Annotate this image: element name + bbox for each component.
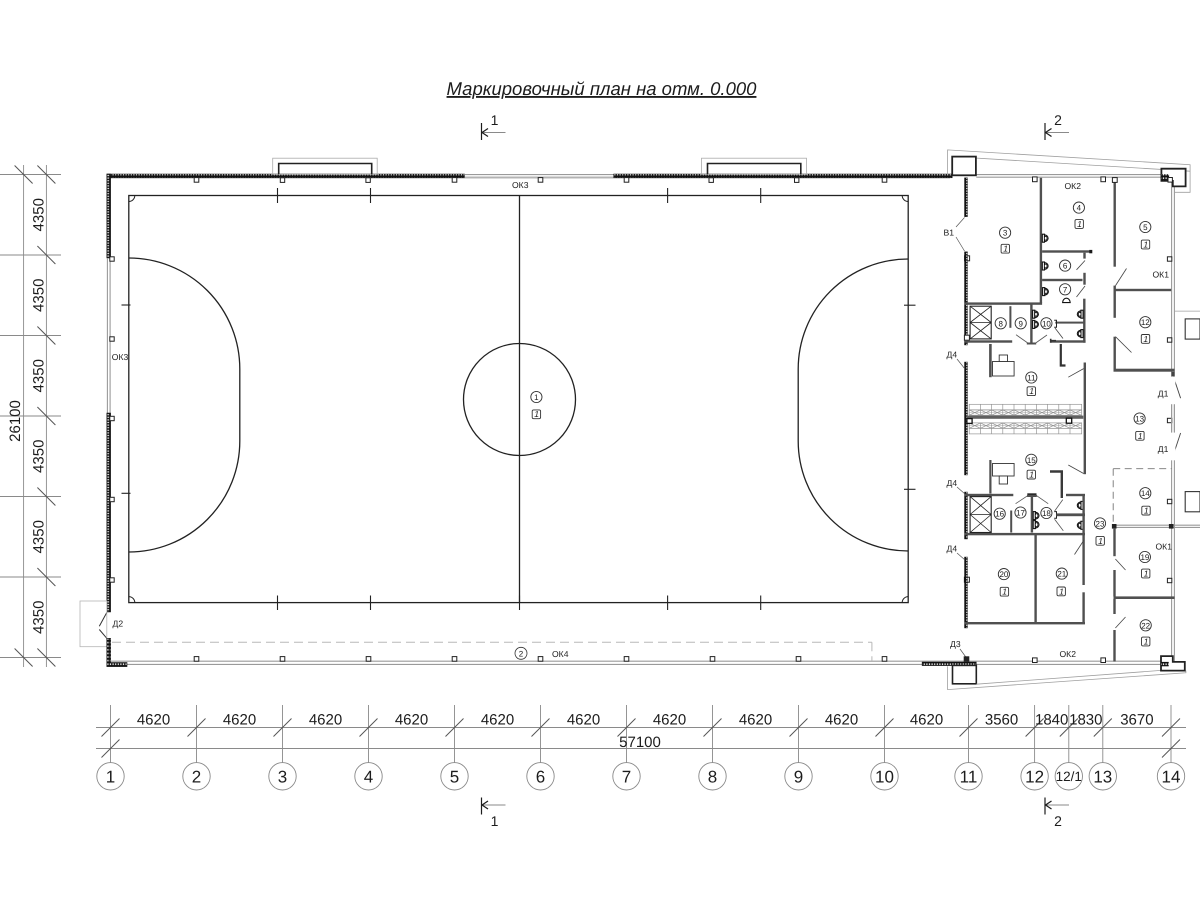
svg-text:4: 4	[1077, 204, 1082, 213]
svg-text:10: 10	[875, 767, 894, 786]
svg-text:11: 11	[960, 767, 978, 786]
svg-text:1: 1	[1003, 244, 1008, 254]
svg-text:4350: 4350	[31, 279, 48, 312]
svg-text:3670: 3670	[1120, 712, 1153, 729]
svg-text:1: 1	[1029, 386, 1034, 396]
svg-text:1: 1	[534, 393, 539, 402]
svg-text:9: 9	[1018, 319, 1023, 328]
svg-text:20: 20	[999, 570, 1008, 579]
svg-text:1: 1	[1143, 240, 1148, 250]
svg-text:14: 14	[1162, 767, 1181, 786]
svg-text:4350: 4350	[31, 440, 48, 473]
svg-text:1830: 1830	[1069, 712, 1102, 729]
svg-text:17: 17	[1016, 509, 1025, 518]
svg-text:13: 13	[1093, 767, 1112, 786]
svg-text:3560: 3560	[985, 712, 1018, 729]
svg-text:21: 21	[1057, 570, 1066, 579]
svg-text:Д1: Д1	[1158, 389, 1169, 399]
svg-text:Д4: Д4	[947, 544, 958, 554]
svg-text:1: 1	[1144, 506, 1149, 516]
svg-text:1: 1	[1059, 586, 1064, 596]
svg-text:Д3: Д3	[950, 639, 961, 649]
svg-text:Д2: Д2	[113, 619, 124, 629]
svg-text:6: 6	[1063, 262, 1068, 271]
svg-text:12: 12	[1141, 318, 1150, 327]
svg-text:1: 1	[1029, 470, 1034, 480]
svg-text:18: 18	[1042, 509, 1051, 518]
svg-text:1: 1	[491, 813, 499, 829]
svg-text:11: 11	[1027, 374, 1036, 383]
svg-text:12/1: 12/1	[1056, 769, 1082, 784]
svg-text:22: 22	[1141, 621, 1150, 630]
svg-text:Д4: Д4	[947, 478, 958, 488]
svg-text:ОК3: ОК3	[112, 352, 129, 362]
svg-text:4620: 4620	[395, 712, 428, 729]
svg-text:2: 2	[1054, 112, 1062, 128]
svg-text:4350: 4350	[31, 601, 48, 634]
svg-text:9: 9	[794, 767, 803, 786]
svg-text:1: 1	[1144, 637, 1149, 647]
svg-text:4350: 4350	[31, 359, 48, 392]
svg-text:6: 6	[536, 767, 545, 786]
svg-text:1: 1	[491, 112, 499, 128]
svg-text:1: 1	[1144, 569, 1149, 579]
svg-text:5: 5	[1143, 223, 1148, 232]
svg-text:1: 1	[534, 409, 539, 419]
svg-text:1: 1	[1002, 587, 1007, 597]
svg-text:2: 2	[1054, 813, 1062, 829]
svg-text:7: 7	[622, 767, 631, 786]
svg-text:4350: 4350	[31, 520, 48, 553]
svg-text:10: 10	[1042, 319, 1051, 328]
svg-text:2: 2	[192, 767, 201, 786]
svg-text:ОК2: ОК2	[1060, 649, 1077, 659]
svg-text:4620: 4620	[825, 712, 858, 729]
svg-text:4620: 4620	[653, 712, 686, 729]
svg-text:2: 2	[519, 649, 524, 658]
svg-text:1: 1	[106, 767, 115, 786]
svg-text:4620: 4620	[481, 712, 514, 729]
svg-text:5: 5	[450, 767, 459, 786]
svg-text:19: 19	[1140, 553, 1149, 562]
svg-text:13: 13	[1135, 415, 1144, 424]
svg-text:3: 3	[1003, 229, 1008, 238]
svg-text:15: 15	[1027, 456, 1036, 465]
svg-text:1: 1	[1077, 219, 1082, 229]
svg-text:4620: 4620	[910, 712, 943, 729]
svg-text:7: 7	[1063, 285, 1068, 294]
svg-text:ОК3: ОК3	[512, 180, 529, 190]
svg-text:16: 16	[995, 510, 1004, 519]
svg-text:Д4: Д4	[947, 350, 958, 360]
svg-text:4350: 4350	[31, 198, 48, 231]
svg-text:4620: 4620	[223, 712, 256, 729]
svg-text:ОК4: ОК4	[552, 649, 569, 659]
svg-text:4620: 4620	[137, 712, 170, 729]
svg-text:12: 12	[1025, 767, 1044, 786]
svg-text:1: 1	[1138, 431, 1143, 441]
svg-text:ОК2: ОК2	[1065, 181, 1082, 191]
svg-text:8: 8	[708, 767, 717, 786]
svg-text:4620: 4620	[309, 712, 342, 729]
svg-text:4: 4	[364, 767, 373, 786]
svg-text:ОК1: ОК1	[1153, 270, 1170, 280]
svg-text:8: 8	[998, 319, 1003, 328]
svg-text:14: 14	[1141, 489, 1150, 498]
svg-text:В1: В1	[944, 228, 955, 238]
svg-text:57100: 57100	[619, 734, 661, 751]
svg-text:3: 3	[278, 767, 287, 786]
svg-text:4620: 4620	[567, 712, 600, 729]
svg-text:1: 1	[1143, 334, 1148, 344]
svg-text:26100: 26100	[7, 400, 24, 442]
svg-text:23: 23	[1096, 519, 1105, 528]
svg-text:ОК1: ОК1	[1156, 542, 1173, 552]
svg-text:4620: 4620	[739, 712, 772, 729]
svg-text:Д1: Д1	[1158, 444, 1169, 454]
svg-text:1: 1	[1098, 536, 1103, 546]
svg-text:Маркировочный план на отм. 0.0: Маркировочный план на отм. 0.000	[447, 78, 758, 99]
svg-text:1840: 1840	[1035, 712, 1068, 729]
